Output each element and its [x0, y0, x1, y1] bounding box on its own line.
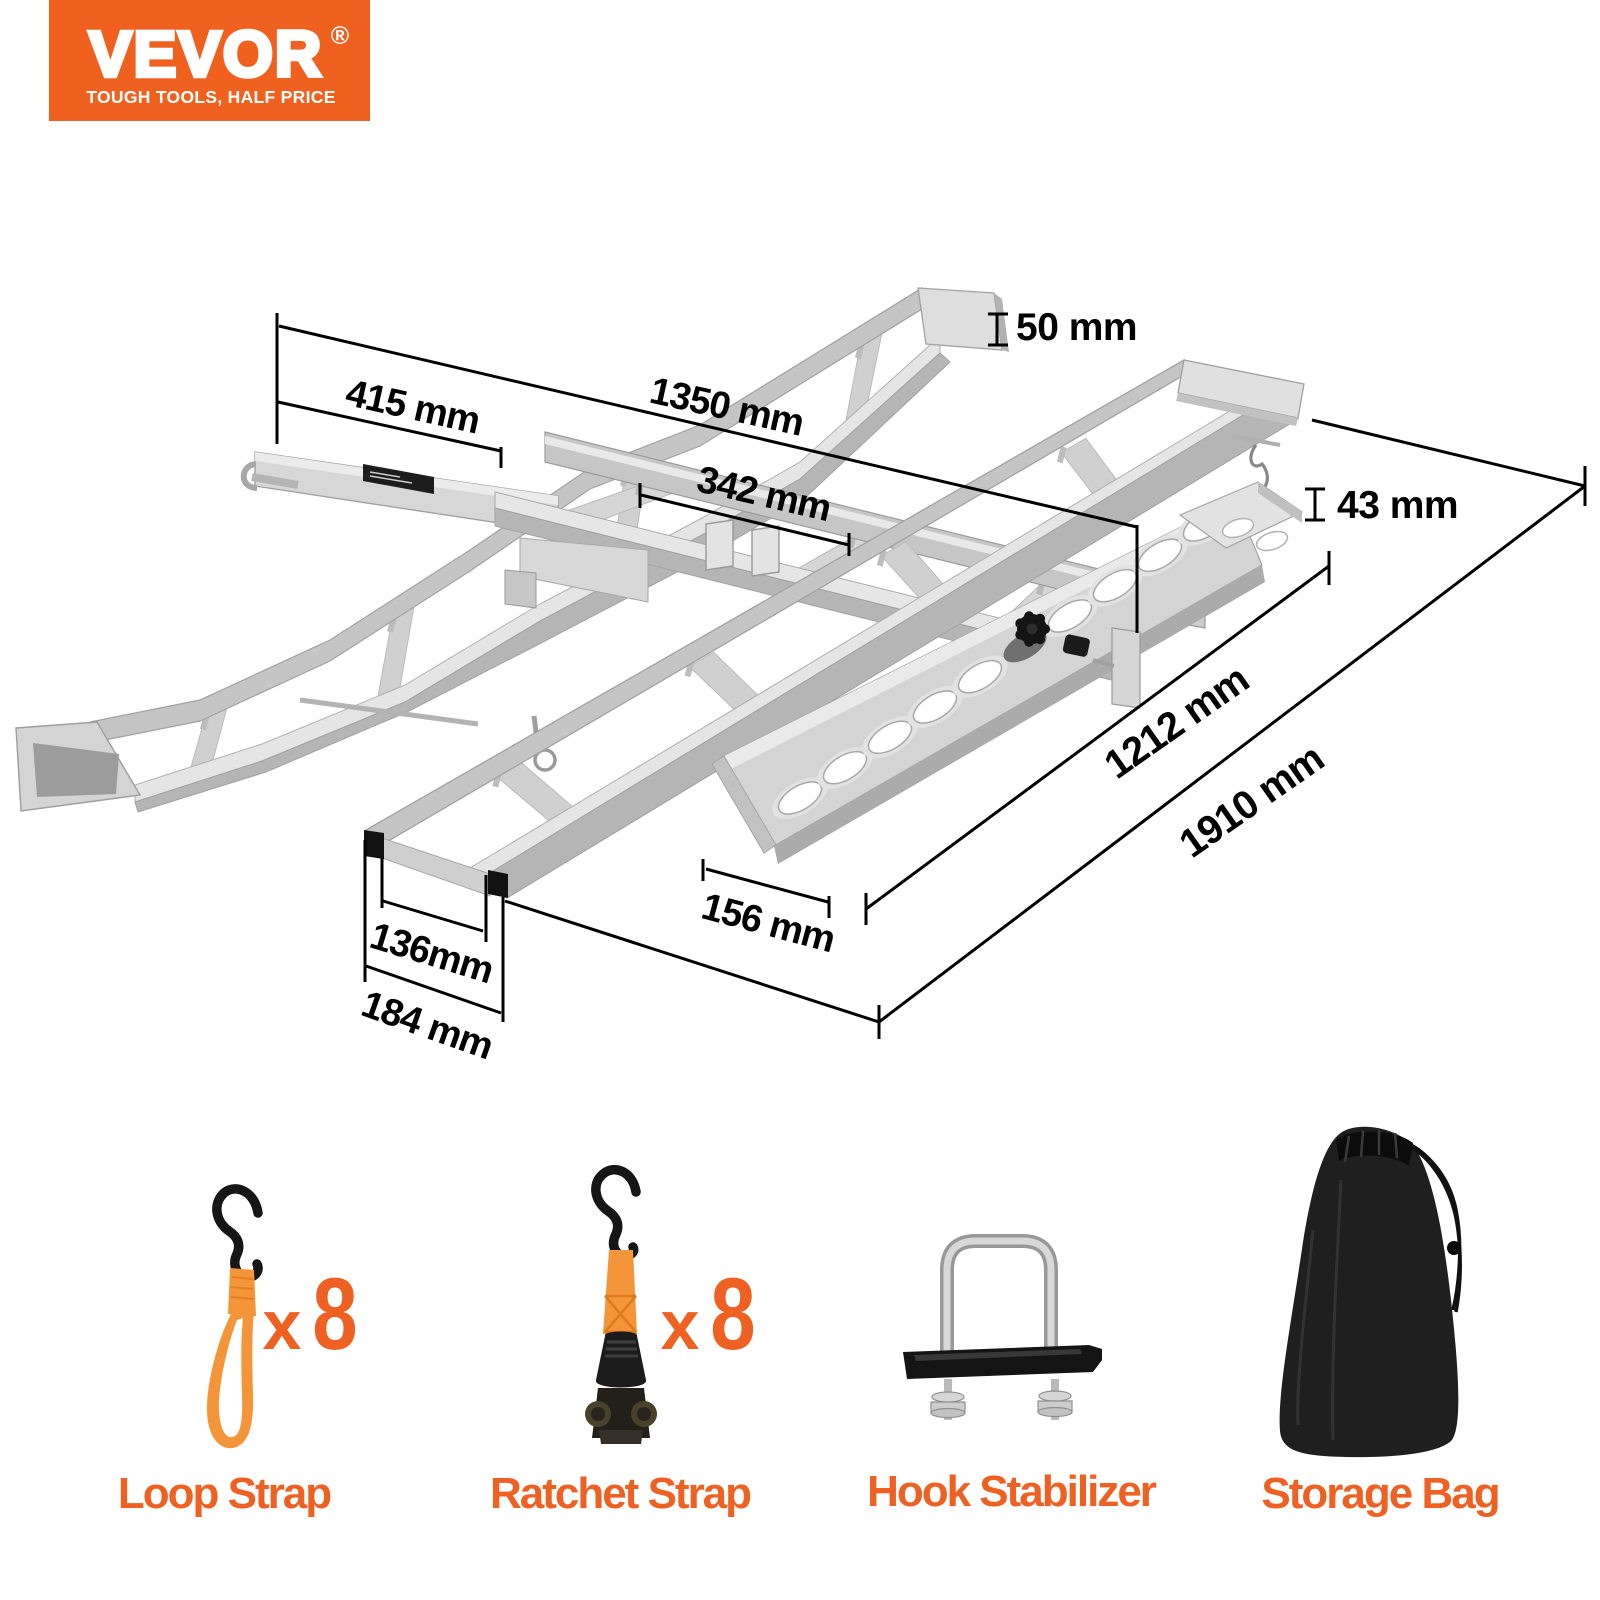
svg-text:VEVOR: VEVOR [89, 18, 323, 90]
svg-text:TOUGH TOOLS, HALF PRICE: TOUGH TOOLS, HALF PRICE [86, 87, 335, 107]
svg-text:50 mm: 50 mm [1016, 306, 1137, 349]
svg-text:8: 8 [710, 1256, 755, 1371]
svg-text:Loop Strap: Loop Strap [118, 1469, 331, 1518]
svg-text:Ratchet Strap: Ratchet Strap [490, 1469, 751, 1518]
svg-text:43 mm: 43 mm [1337, 484, 1458, 527]
svg-text:Hook Stabilizer: Hook Stabilizer [867, 1467, 1157, 1516]
svg-text:Storage Bag: Storage Bag [1261, 1469, 1498, 1518]
svg-text:8: 8 [312, 1256, 357, 1371]
svg-text:x: x [263, 1286, 302, 1364]
svg-text:®: ® [331, 22, 350, 50]
svg-text:x: x [661, 1286, 700, 1364]
